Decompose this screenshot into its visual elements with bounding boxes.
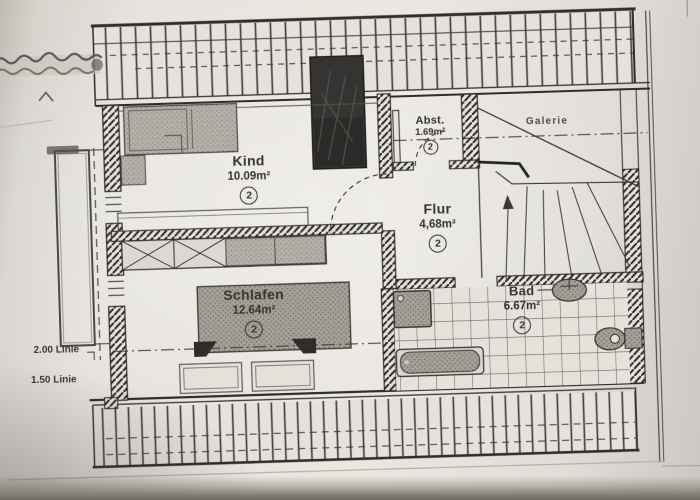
height-line-150-label: 1.50 Linie (31, 374, 77, 386)
wardrobe (122, 235, 327, 270)
room-name: Bad (509, 284, 535, 299)
window-left-2 (108, 281, 124, 295)
room-name: Flur (423, 201, 451, 217)
room-level-badge: 2 (429, 235, 447, 253)
room-label-schlafen: Schlafen 12.64m² 2 (223, 287, 285, 339)
stairs (476, 103, 642, 281)
floor-plan: Kind 10.09m² 2 Schlafen 12.64m² 2 Flur 4… (0, 0, 700, 500)
room-area: 12.64m² (232, 303, 275, 318)
toilet (595, 327, 643, 350)
bed-kind (123, 103, 237, 155)
room-level-badge: 2 (245, 320, 263, 338)
room-level-badge: 2 (240, 186, 258, 204)
height-line-200-label: 2.00 Linie (33, 344, 79, 356)
room-label-abst: Abst. 1.69m² 2 (415, 114, 446, 155)
pencil-caret-mark (39, 92, 53, 101)
vegetation-scribble (0, 51, 103, 77)
room-area: 4,68m² (419, 217, 456, 232)
room-name: Abst. (415, 115, 444, 128)
room-name: Kind (232, 153, 265, 169)
galerie-label: Galerie (526, 116, 568, 128)
room-area: 10.09m² (227, 169, 270, 184)
chimney (310, 55, 366, 169)
plan-linework (0, 0, 700, 500)
bathtub (396, 347, 484, 377)
kind-furniture (114, 101, 308, 231)
room-level-badge: 2 (513, 316, 531, 334)
room-level-badge: 2 (423, 140, 438, 155)
room-area: 1.69m² (415, 127, 445, 139)
floorplan-photo: Kind 10.09m² 2 Schlafen 12.64m² 2 Flur 4… (0, 0, 700, 500)
shower-drain (397, 295, 403, 301)
left-margin (0, 91, 110, 363)
roof-band-top (91, 9, 650, 106)
room-name: Schlafen (223, 287, 284, 304)
desk-kind (121, 155, 146, 185)
stair-railing (477, 160, 529, 179)
room-label-kind: Kind 10.09m² 2 (227, 153, 271, 205)
photo-shadow-bottom (0, 476, 700, 500)
room-area: 6.67m² (504, 299, 541, 314)
washbasin (552, 279, 587, 302)
room-label-bad: Bad 6.67m² 2 (503, 284, 540, 334)
room-label-flur: Flur 4,68m² 2 (419, 201, 456, 253)
roof-band-bottom (90, 383, 647, 467)
window-left-1 (105, 197, 121, 211)
stair-direction-arrow (502, 195, 513, 209)
